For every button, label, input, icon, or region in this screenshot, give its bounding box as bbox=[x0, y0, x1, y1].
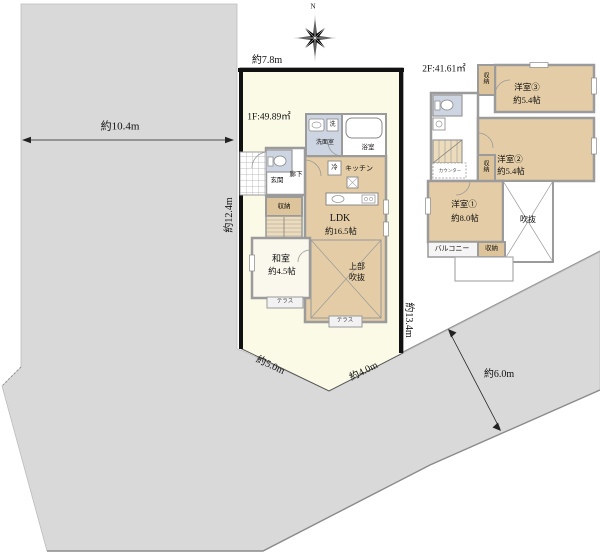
toilet-tank-icon-2f bbox=[435, 101, 440, 110]
closet-2f-mid-label: 収納 bbox=[483, 162, 491, 175]
toilet-bowl-icon-2f bbox=[441, 100, 453, 110]
window-2f-east-2 bbox=[592, 138, 597, 154]
window-east-1 bbox=[384, 200, 389, 214]
void-upper-label-2: 吹抜 bbox=[349, 274, 365, 282]
toilet-bowl-icon-1f bbox=[274, 156, 286, 166]
room3-label: 洋室③ bbox=[514, 83, 540, 92]
window-west-washitsu bbox=[250, 255, 255, 271]
kitchen-label: キッチン bbox=[345, 166, 373, 173]
floor-plan-drawing bbox=[0, 0, 600, 557]
washbasin-icon-2f bbox=[433, 118, 445, 130]
window-2f-west bbox=[426, 198, 431, 214]
room2-label: 洋室② bbox=[497, 155, 523, 164]
window-2f-east-1 bbox=[592, 78, 597, 94]
room1-label: 洋室① bbox=[451, 200, 477, 209]
dim-road-width-label: 約6.0m bbox=[484, 370, 514, 380]
room-yoshitsu1 bbox=[428, 181, 503, 242]
dim-top-edge-label: 約7.8m bbox=[252, 56, 282, 66]
ldk-size-label: 約16.5帖 bbox=[325, 227, 357, 236]
dim-outer-width-label: 約10.4m bbox=[101, 122, 140, 133]
bathtub-icon bbox=[346, 118, 382, 138]
north-label: N bbox=[310, 4, 315, 11]
terrace-west-label: テラス bbox=[277, 299, 293, 305]
closet-2f-bottom-label: 収納 bbox=[485, 246, 498, 253]
entrance-label: 玄関 bbox=[271, 178, 284, 185]
floor-plan-page: N 約7.8m 約10.4m 約12.4m 約13.4m 約5.0m 約4.0m… bbox=[0, 0, 600, 557]
dim-left-edge-label: 約12.4m bbox=[225, 197, 235, 232]
floor1-area-label: 1F:49.89㎡ bbox=[247, 113, 291, 123]
balcony-label: バルコニー bbox=[435, 246, 470, 253]
window-2f-top bbox=[530, 63, 548, 68]
counter-label: カウンター bbox=[439, 169, 462, 174]
fridge-label: 冷 bbox=[331, 165, 338, 172]
void-2f-label: 吹抜 bbox=[520, 216, 536, 224]
room2-size-label: 約5.4帖 bbox=[497, 167, 525, 176]
terrace-south-label: テラス bbox=[337, 318, 353, 324]
washer-label: 洗 bbox=[329, 122, 335, 128]
ldk-label: LDK bbox=[330, 214, 351, 224]
washitsu-size-label: 約4.5帖 bbox=[268, 267, 296, 276]
hallway-label: 廊下 bbox=[290, 172, 303, 179]
floor2-area-label: 2F:41.61㎡ bbox=[422, 65, 466, 75]
porch-tile-grid bbox=[240, 152, 266, 195]
dim-right-edge-label: 約13.4m bbox=[403, 302, 413, 337]
lower-roof-outline bbox=[455, 257, 513, 281]
room-ldk-floor bbox=[305, 156, 386, 322]
void-upper-label-1: 上部 bbox=[349, 263, 365, 271]
toilet-tank-icon-1f bbox=[268, 157, 273, 166]
room-yoshitsu3 bbox=[495, 65, 594, 112]
washbasin-icon bbox=[309, 119, 324, 131]
bath-label: 浴室 bbox=[362, 145, 375, 152]
compass-north-icon bbox=[293, 14, 337, 62]
closet-1f-label: 収納 bbox=[278, 204, 291, 211]
room1-size-label: 約8.0帖 bbox=[451, 214, 479, 223]
room3-size-label: 約5.4帖 bbox=[513, 96, 541, 105]
washitsu-label: 和室 bbox=[272, 255, 290, 264]
washroom-label: 洗面室 bbox=[316, 140, 334, 146]
window-east-2 bbox=[384, 222, 389, 236]
closet-2f-top-label: 収納 bbox=[483, 74, 491, 87]
